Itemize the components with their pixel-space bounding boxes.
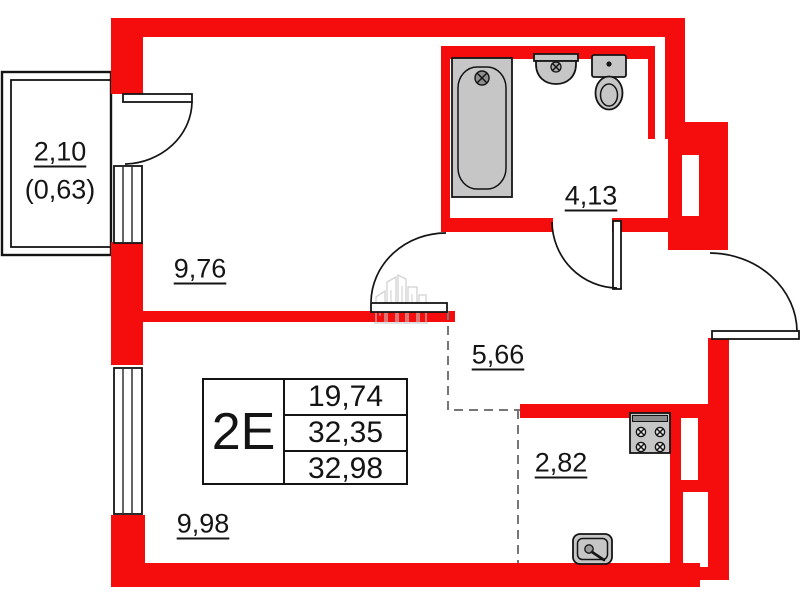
hallway-area-label: 5,66 bbox=[472, 340, 525, 371]
washbasin-icon bbox=[534, 54, 578, 84]
unit-area-row: 32,98 bbox=[285, 452, 406, 486]
stove-icon bbox=[630, 413, 670, 453]
burner-icon bbox=[655, 427, 664, 436]
unit-type-label: 2E bbox=[204, 380, 285, 483]
floor-plan: 2,10 (0,63) 9,76 4,13 5,66 2,82 9,98 2E … bbox=[0, 0, 800, 600]
balcony-area-label: 2,10 bbox=[34, 137, 87, 168]
floor-plan-drawing bbox=[0, 0, 800, 600]
kitchen-area-label: 2,82 bbox=[535, 448, 588, 479]
balcony-reduced-area-label: (0,63) bbox=[25, 175, 96, 206]
toilet-icon bbox=[592, 55, 626, 110]
kitchen-sink-icon bbox=[573, 534, 612, 564]
burner-icon bbox=[636, 427, 645, 436]
balcony-door bbox=[123, 94, 192, 164]
unit-area-row: 19,74 bbox=[285, 380, 406, 414]
bathroom-area-label: 4,13 bbox=[565, 181, 618, 212]
living-room-area-label: 9,98 bbox=[177, 509, 230, 540]
bathtub-icon bbox=[452, 58, 512, 197]
bedroom-area-label: 9,76 bbox=[174, 254, 227, 285]
entrance-door bbox=[710, 253, 799, 339]
window-icon-lower bbox=[114, 368, 142, 514]
burner-icon bbox=[655, 442, 664, 451]
burner-icon bbox=[636, 442, 645, 451]
unit-area-row: 32,35 bbox=[285, 414, 406, 452]
unit-info-table: 2E 19,74 32,35 32,98 bbox=[202, 378, 408, 485]
bathroom-door bbox=[552, 221, 621, 289]
room-door bbox=[371, 233, 447, 312]
shaft-niche bbox=[682, 155, 699, 216]
window-icon-upper bbox=[114, 166, 142, 243]
